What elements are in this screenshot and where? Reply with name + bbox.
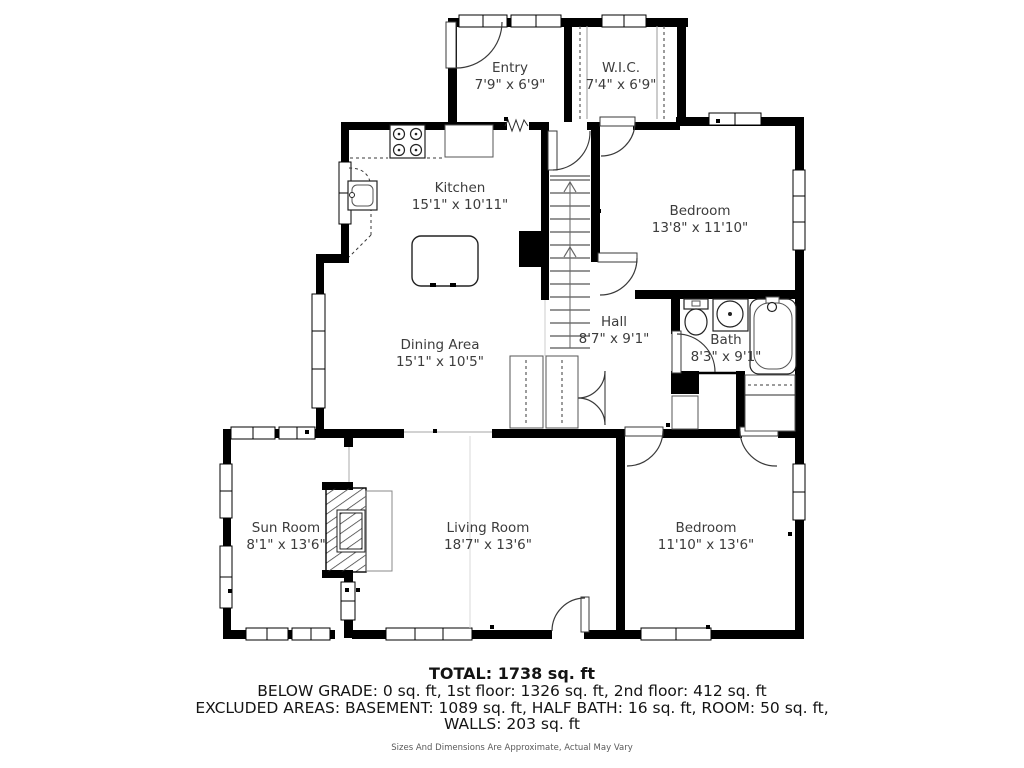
room-dims: 15'1" x 10'11": [412, 197, 509, 214]
room-name: Dining Area: [396, 337, 484, 354]
opening-squiggle: [505, 120, 528, 131]
room-label-bath: Bath 8'3" x 9'1": [691, 332, 762, 366]
room-dims: 7'4" x 6'9": [586, 77, 657, 94]
fireplace: [326, 488, 392, 572]
room-dims: 8'3" x 9'1": [691, 349, 762, 366]
hearth: [366, 491, 392, 571]
room-dims: 13'8" x 11'10": [652, 220, 749, 237]
vanity-sink: [713, 299, 748, 331]
floor-plan-drawing: [0, 0, 1024, 768]
room-label-bedroom-lower: Bedroom 11'10" x 13'6": [658, 520, 755, 554]
total-area-text: TOTAL: 1738 sq. ft: [0, 664, 1024, 683]
room-label-kitchen: Kitchen 15'1" x 10'11": [412, 180, 509, 214]
kitchen-island: [412, 236, 478, 287]
room-dims: 11'10" x 13'6": [658, 537, 755, 554]
room-label-entry: Entry 7'9" x 6'9": [475, 60, 546, 94]
stove: [390, 125, 425, 158]
room-dims: 8'1" x 13'6": [246, 537, 325, 554]
disclaimer-text: Sizes And Dimensions Are Approximate, Ac…: [0, 743, 1024, 753]
kitchen-sink: [348, 181, 377, 210]
room-dims: 18'7" x 13'6": [444, 537, 532, 554]
room-label-dining: Dining Area 15'1" x 10'5": [396, 337, 484, 371]
room-dims: 15'1" x 10'5": [396, 354, 484, 371]
room-label-bedroom-upper: Bedroom 13'8" x 11'10": [652, 203, 749, 237]
room-label-hall: Hall 8'7" x 9'1": [579, 314, 650, 348]
room-name: W.I.C.: [586, 60, 657, 77]
hall-closets: [510, 356, 578, 428]
kitchen-cabinet: [445, 125, 493, 157]
room-name: Living Room: [444, 520, 532, 537]
room-name: Bath: [691, 332, 762, 349]
room-name: Sun Room: [246, 520, 325, 537]
floor-areas-text: BELOW GRADE: 0 sq. ft, 1st floor: 1326 s…: [0, 683, 1024, 700]
room-name: Bedroom: [658, 520, 755, 537]
room-label-sunroom: Sun Room 8'1" x 13'6": [246, 520, 325, 554]
room-dims: 7'9" x 6'9": [475, 77, 546, 94]
room-name: Kitchen: [412, 180, 509, 197]
room-label-living: Living Room 18'7" x 13'6": [444, 520, 532, 554]
room-dims: 8'7" x 9'1": [579, 331, 650, 348]
walls-area-text: WALLS: 203 sq. ft: [0, 716, 1024, 733]
room-name: Hall: [579, 314, 650, 331]
toilet: [684, 299, 708, 335]
room-name: Entry: [475, 60, 546, 77]
room-label-wic: W.I.C. 7'4" x 6'9": [586, 60, 657, 94]
room-name: Bedroom: [652, 203, 749, 220]
floor-plan-page: Entry 7'9" x 6'9" W.I.C. 7'4" x 6'9" Kit…: [0, 0, 1024, 768]
excluded-areas-text: EXCLUDED AREAS: BASEMENT: 1089 sq. ft, H…: [0, 700, 1024, 717]
area-summary: TOTAL: 1738 sq. ft BELOW GRADE: 0 sq. ft…: [0, 664, 1024, 753]
